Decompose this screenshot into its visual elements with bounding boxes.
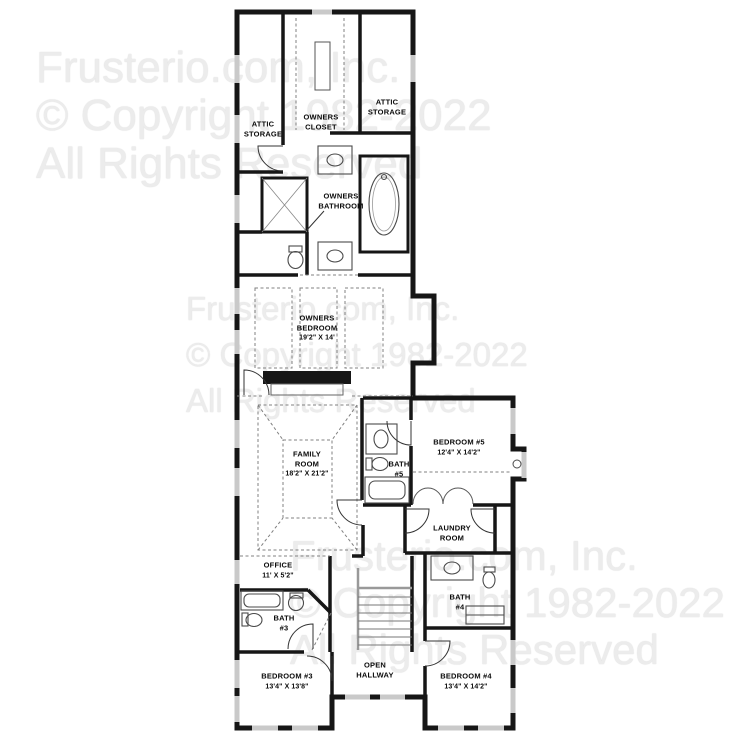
sink-icon [327,154,343,166]
room-label-bath-4: BATH #4 [449,582,470,611]
toilet-bowl [483,572,495,588]
room-name: BATH #4 [449,592,470,611]
room-label-bedroom-3: BEDROOM #3 13'4" X 13'8" [261,661,313,700]
toilet-bowl [372,458,388,471]
room-name: BATH #3 [273,613,294,632]
vanity-sink [431,556,473,580]
family-hall-door [337,500,362,525]
room-label-family-room: FAMILY ROOM 18'2" X 21'2" [285,439,328,488]
room-label-office: OFFICE 11' X 5'2" [262,550,293,589]
room-label-attic-storage-right: ATTIC STORAGE [368,87,406,116]
room-dimensions: 12'4" X 14'2" [433,448,485,457]
room-dimensions: 13'4" X 13'8" [261,682,313,691]
attic-door [258,146,283,171]
room-label-owners-closet: OWNERS CLOSET [304,102,339,131]
room-label-laundry-room: LAUNDRY ROOM [433,513,471,542]
toilet-bowl [288,252,303,269]
room-name: LAUNDRY ROOM [433,523,471,542]
room-dimensions: 18'2" X 21'2" [285,470,328,479]
room-label-bath-5: BATH #5 [388,449,409,478]
room-dimensions: 19'2" X 14' [297,334,338,343]
bath5-door [387,421,411,445]
tub-platform [360,156,408,252]
room-label-owners-bathroom: OWNERS BATHROOM [318,181,363,210]
floor-plan-page: Frusterio.com, Inc. © Copyright 1982-202… [0,0,750,750]
room-name: BEDROOM #3 [261,671,313,680]
fireplace [263,371,351,384]
laundry-door-right [471,509,495,533]
room-label-bath-3: BATH #3 [273,603,294,632]
bay-window-detail [513,460,521,468]
toilet-tank [484,567,495,572]
toilet-tank [366,458,372,470]
staircase [358,568,412,650]
room-label-open-hallway: OPEN HALLWAY [356,650,393,679]
room-name: ATTIC STORAGE [244,119,282,138]
room-name: OWNERS BATHROOM [318,191,363,210]
room-name: BEDROOM #5 [433,437,485,446]
room-name: BEDROOM #4 [440,671,492,680]
vanity-sink [318,146,352,174]
sink-icon [327,250,343,262]
room-name: BATH #5 [388,459,409,478]
room-name: OPEN HALLWAY [356,660,393,679]
laundry-door-left [405,509,429,533]
fireplace-hearth [271,384,343,395]
room-label-bedroom-5: BEDROOM #5 12'4" X 14'2" [433,427,485,466]
room-label-bedroom-4: BEDROOM #4 13'4" X 14'2" [440,661,492,700]
sink-icon [444,562,460,574]
vanity-sink [318,242,352,270]
room-dimensions: 11' X 5'2" [262,571,293,580]
room-name: ATTIC STORAGE [368,97,406,116]
room-dimensions: 13'4" X 14'2" [440,682,492,691]
room-name: OFFICE [264,560,293,569]
room-name: OWNERS BEDROOM [297,313,338,332]
room-label-attic-storage-left: ATTIC STORAGE [244,109,282,138]
bedroom5-closet-arch-doors [413,488,473,504]
sink-icon [374,430,388,448]
room-name: FAMILY ROOM [293,449,321,468]
room-name: OWNERS CLOSET [304,112,339,131]
shower [262,178,324,232]
closet-shelf [315,42,330,90]
tub [369,173,399,235]
room-label-owners-bedroom: OWNERS BEDROOM 19'2" X 14' [297,303,338,352]
